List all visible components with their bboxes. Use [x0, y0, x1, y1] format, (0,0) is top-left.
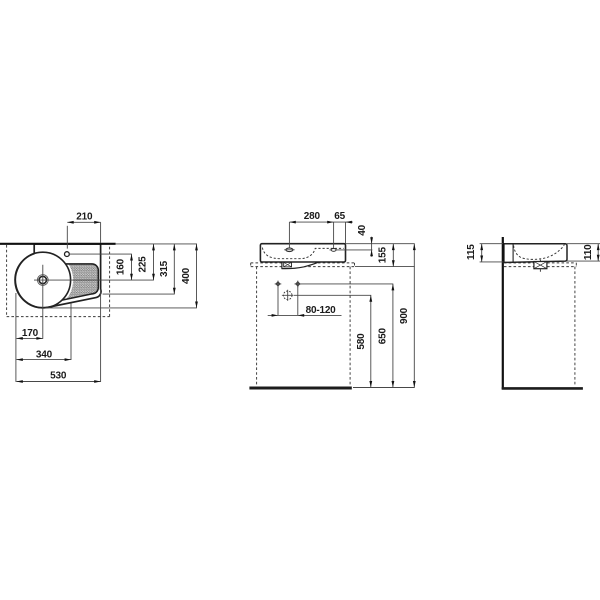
svg-text:650: 650 [378, 328, 389, 345]
svg-text:80-120: 80-120 [306, 305, 337, 316]
svg-text:65: 65 [334, 211, 345, 222]
svg-text:110: 110 [583, 244, 594, 260]
svg-text:340: 340 [36, 349, 53, 360]
svg-text:40: 40 [357, 224, 368, 235]
svg-text:210: 210 [76, 211, 93, 222]
svg-text:170: 170 [22, 328, 39, 339]
svg-text:400: 400 [181, 267, 192, 284]
svg-text:160: 160 [116, 258, 127, 275]
svg-text:225: 225 [138, 256, 149, 273]
svg-text:580: 580 [356, 333, 367, 350]
svg-text:900: 900 [399, 307, 410, 324]
svg-text:155: 155 [378, 247, 389, 264]
svg-text:530: 530 [50, 370, 67, 381]
svg-text:115: 115 [466, 244, 477, 260]
svg-text:280: 280 [304, 211, 321, 222]
svg-text:315: 315 [159, 260, 170, 277]
